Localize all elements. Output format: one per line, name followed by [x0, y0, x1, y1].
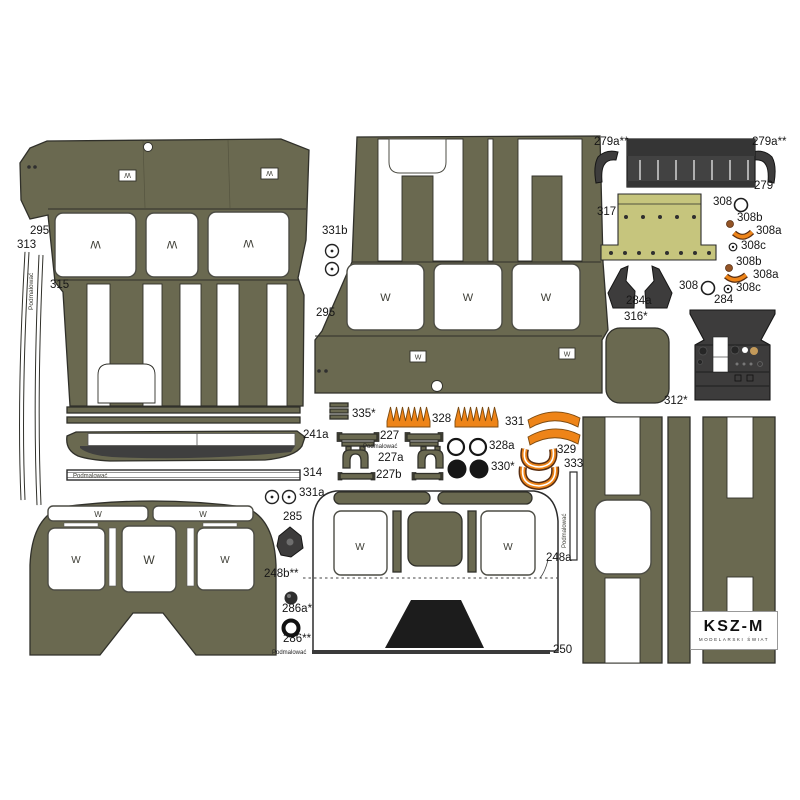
publisher-subtitle: MODELARSKI ŚWIAT [699, 637, 769, 642]
label-329: 329 [557, 445, 576, 457]
svg-text:Podmalować: Podmalować [28, 272, 35, 310]
svg-text:W: W [166, 238, 177, 250]
svg-text:W: W [243, 237, 254, 249]
svg-text:W: W [266, 169, 273, 176]
part-back-panel-295: W W W W W [315, 136, 608, 393]
horseshoes-329 [523, 449, 556, 486]
plate-316 [606, 328, 669, 403]
part-back-panel-295-inverted: W W W W W [20, 139, 309, 406]
label-279: 279 [754, 181, 773, 193]
roof-piece-241a [67, 431, 305, 461]
hatch-outline [98, 364, 155, 403]
dashboard-284 [690, 310, 775, 400]
label-312: 312* [664, 396, 688, 408]
label-330: 330* [491, 462, 515, 474]
label-308a-1: 308a [756, 226, 782, 238]
svg-text:W: W [541, 292, 552, 304]
label-250: 250 [553, 645, 572, 657]
label-286a: 286a* [282, 604, 312, 616]
label-331: 331 [505, 417, 524, 429]
washer-308 [735, 199, 748, 212]
rings-328a [448, 439, 486, 455]
label-308-2: 308 [679, 281, 698, 293]
svg-text:W: W [220, 555, 230, 566]
label-241a: 241a [303, 430, 329, 442]
strip-313: Podmalować [22, 252, 35, 500]
strip-314: Podmalować [67, 470, 300, 480]
label-333: 333 [564, 459, 583, 471]
publisher-logo: KSZ-M MODELARSKI ŚWIAT [690, 611, 778, 650]
label-227b: 227b [376, 470, 402, 482]
label-331a: 331a [299, 488, 325, 500]
knob-308b [726, 265, 733, 272]
label-317: 317 [597, 207, 616, 219]
svg-text:W: W [380, 292, 391, 304]
publisher-name: KSZ-M [704, 619, 765, 635]
label-315: 315 [50, 280, 69, 292]
svg-text:W: W [143, 553, 155, 567]
rivet-marks-331b [326, 245, 339, 276]
svg-text:W: W [355, 542, 365, 553]
label-328a: 328a [489, 441, 515, 453]
label-313: 313 [17, 240, 36, 252]
svg-text:W: W [463, 292, 474, 304]
model-sheet-page: W W W W W Podmalować W W [0, 0, 800, 800]
plate-317 [601, 194, 716, 260]
label-279a-right: 279a** [752, 137, 787, 149]
label-227a: 227a [378, 453, 404, 465]
svg-text:Podmalować: Podmalować [562, 514, 568, 548]
svg-text:W: W [124, 171, 131, 178]
label-paint-note-250: Podmalować [272, 650, 306, 656]
label-314: 314 [303, 468, 322, 480]
label-248b: 248b** [264, 569, 299, 581]
label-279a-left: 279a** [594, 137, 629, 149]
label-331b: 331b [322, 226, 348, 238]
label-308c-2: 308c [736, 283, 761, 295]
arc-parts-331 [528, 412, 580, 445]
label-335: 335* [352, 409, 376, 421]
strips-335 [330, 403, 348, 419]
label-284a: 284a [626, 296, 652, 308]
roof-hole-mark [144, 143, 153, 152]
strip-333: Podmalować [562, 472, 577, 560]
rear-cab-panel: W W W W W [30, 501, 276, 655]
bottom-edge-strip-250 [312, 650, 550, 654]
label-284: 284 [714, 295, 733, 307]
window-outline [595, 500, 651, 574]
label-308-1: 308 [713, 197, 732, 209]
label-308a-2: 308a [753, 270, 779, 282]
mount-285 [277, 527, 303, 557]
discs-330 [448, 460, 489, 479]
label-286: 286** [283, 634, 311, 646]
washer-308 [702, 282, 715, 295]
svg-text:W: W [90, 238, 101, 250]
svg-text:W: W [503, 542, 513, 553]
label-308c-1: 308c [741, 241, 766, 253]
strip-315 [37, 255, 41, 505]
long-strip [67, 407, 300, 413]
label-308b-2: 308b [736, 257, 762, 269]
long-strip [67, 417, 300, 423]
svg-text:W: W [415, 355, 422, 362]
knob-308b [727, 221, 734, 228]
rivet-marks-331a [266, 491, 296, 504]
label-paint-note-227: Podmalować [363, 444, 397, 450]
label-248a: 248a [546, 553, 572, 565]
svg-text:W: W [71, 555, 81, 566]
label-285: 285 [283, 512, 302, 524]
svg-text:Podmalować: Podmalować [73, 474, 107, 480]
label-295-top: 295 [30, 226, 49, 238]
label-308b-1: 308b [737, 213, 763, 225]
label-295-mid: 295 [316, 308, 335, 320]
svg-text:W: W [564, 352, 571, 359]
svg-text:W: W [94, 510, 102, 519]
label-316: 316* [624, 312, 648, 324]
hatch-outline [389, 139, 446, 173]
front-panel-250: W W [303, 491, 560, 654]
label-227: 227 [380, 431, 399, 443]
label-328: 328 [432, 414, 451, 426]
grille-279 [627, 139, 755, 187]
svg-text:W: W [199, 510, 207, 519]
